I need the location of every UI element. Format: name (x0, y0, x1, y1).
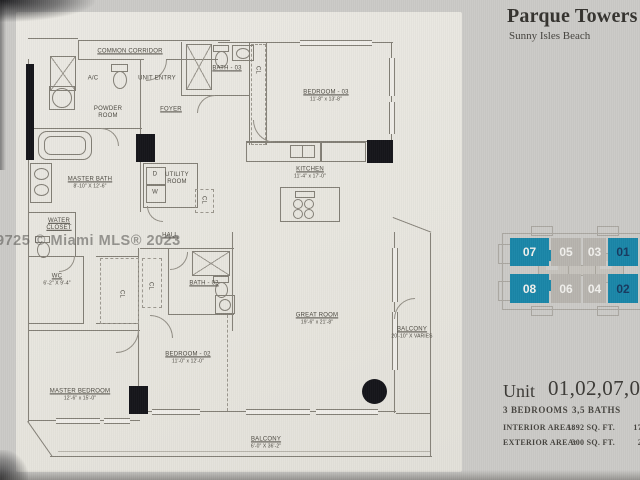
interior-area-row: INTERIOR AREA: 1892 SQ. FT. 17 (503, 423, 640, 432)
bedrooms-text: 3 BEDROOMS (503, 405, 568, 415)
interior-area-label: INTERIOR AREA: (503, 423, 575, 432)
exterior-area-label: EXTERIOR AREA: (503, 438, 577, 447)
exterior-area-row: EXTERIOR AREA: 300 SQ. FT. 2 (503, 438, 640, 447)
bed-bath-row: 3 BEDROOMS 3,5 BATHS (503, 405, 640, 415)
baths-text: 3,5 BATHS (572, 405, 621, 415)
interior-area-partial: 17 (633, 423, 640, 432)
unit-label: Unit (503, 381, 535, 402)
unit-info: Unit 01,02,07,08 3 BEDROOMS 3,5 BATHS IN… (0, 0, 640, 480)
interior-area-sqft: 1892 SQ. FT. (567, 423, 615, 432)
exterior-area-sqft: 300 SQ. FT. (571, 438, 615, 447)
listing-floorplan-photo: COMMON CORRIDORUNIT ENTRYA/CPOWDER ROOMF… (0, 0, 640, 480)
unit-numbers: 01,02,07,08 (548, 376, 640, 401)
